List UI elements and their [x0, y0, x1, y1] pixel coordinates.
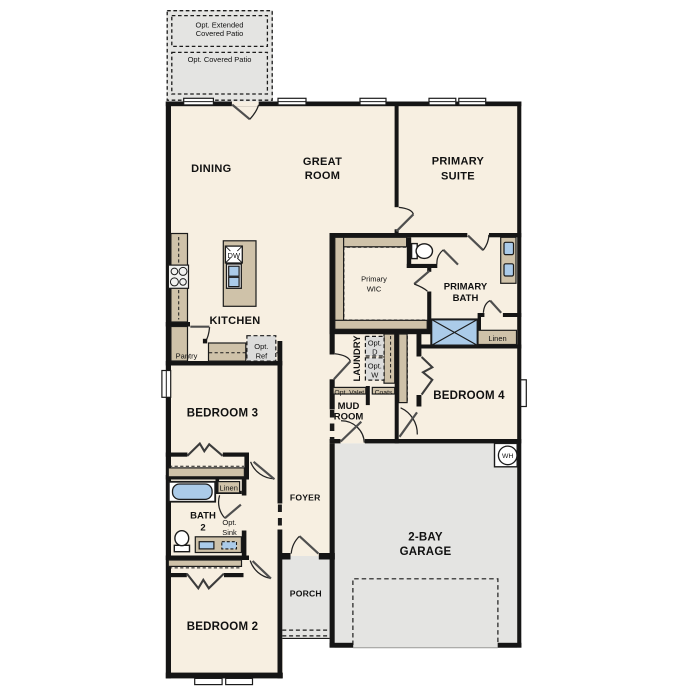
svg-text:Opt. Covered Patio: Opt. Covered Patio — [188, 55, 252, 64]
svg-text:2-BAY: 2-BAY — [408, 532, 443, 544]
svg-text:Primary: Primary — [361, 275, 387, 284]
svg-text:BATH: BATH — [190, 511, 216, 522]
svg-text:Ref: Ref — [256, 352, 269, 361]
svg-text:ROOM: ROOM — [305, 170, 340, 182]
svg-text:Covered Patio: Covered Patio — [196, 29, 244, 38]
svg-text:Coats: Coats — [375, 389, 393, 396]
svg-text:SUITE: SUITE — [441, 171, 475, 183]
svg-text:Pantry: Pantry — [176, 352, 198, 361]
svg-text:Opt.: Opt. — [254, 342, 268, 351]
svg-text:Opt.: Opt. — [368, 362, 382, 371]
svg-text:2: 2 — [200, 523, 205, 534]
svg-text:Sink: Sink — [222, 528, 237, 537]
svg-text:PRIMARY: PRIMARY — [432, 156, 485, 168]
svg-text:LAUNDRY: LAUNDRY — [352, 335, 363, 382]
svg-text:DINING: DINING — [191, 163, 231, 175]
svg-text:GARAGE: GARAGE — [400, 546, 452, 558]
svg-text:Opt.: Opt. — [222, 518, 236, 527]
svg-text:WIC: WIC — [367, 285, 382, 294]
svg-text:PRIMARY: PRIMARY — [444, 281, 488, 292]
svg-text:GREAT: GREAT — [303, 156, 342, 168]
svg-text:W: W — [371, 371, 379, 380]
svg-text:BATH: BATH — [453, 293, 479, 304]
svg-text:Linen: Linen — [488, 334, 506, 343]
svg-text:Opt. Valet: Opt. Valet — [334, 389, 364, 396]
svg-text:ROOM: ROOM — [334, 412, 364, 423]
svg-text:Opt.: Opt. — [368, 339, 382, 348]
svg-text:BEDROOM 4: BEDROOM 4 — [433, 390, 505, 402]
svg-text:MUD: MUD — [338, 401, 360, 412]
svg-text:Linen: Linen — [220, 483, 238, 492]
svg-text:WH: WH — [502, 453, 513, 460]
svg-text:KITCHEN: KITCHEN — [210, 315, 261, 327]
svg-text:FOYER: FOYER — [290, 492, 321, 502]
svg-text:BEDROOM 2: BEDROOM 2 — [187, 621, 258, 633]
svg-text:D: D — [372, 348, 378, 357]
svg-text:DW: DW — [228, 251, 241, 260]
svg-text:PORCH: PORCH — [290, 589, 322, 599]
svg-text:BEDROOM 3: BEDROOM 3 — [187, 408, 258, 420]
